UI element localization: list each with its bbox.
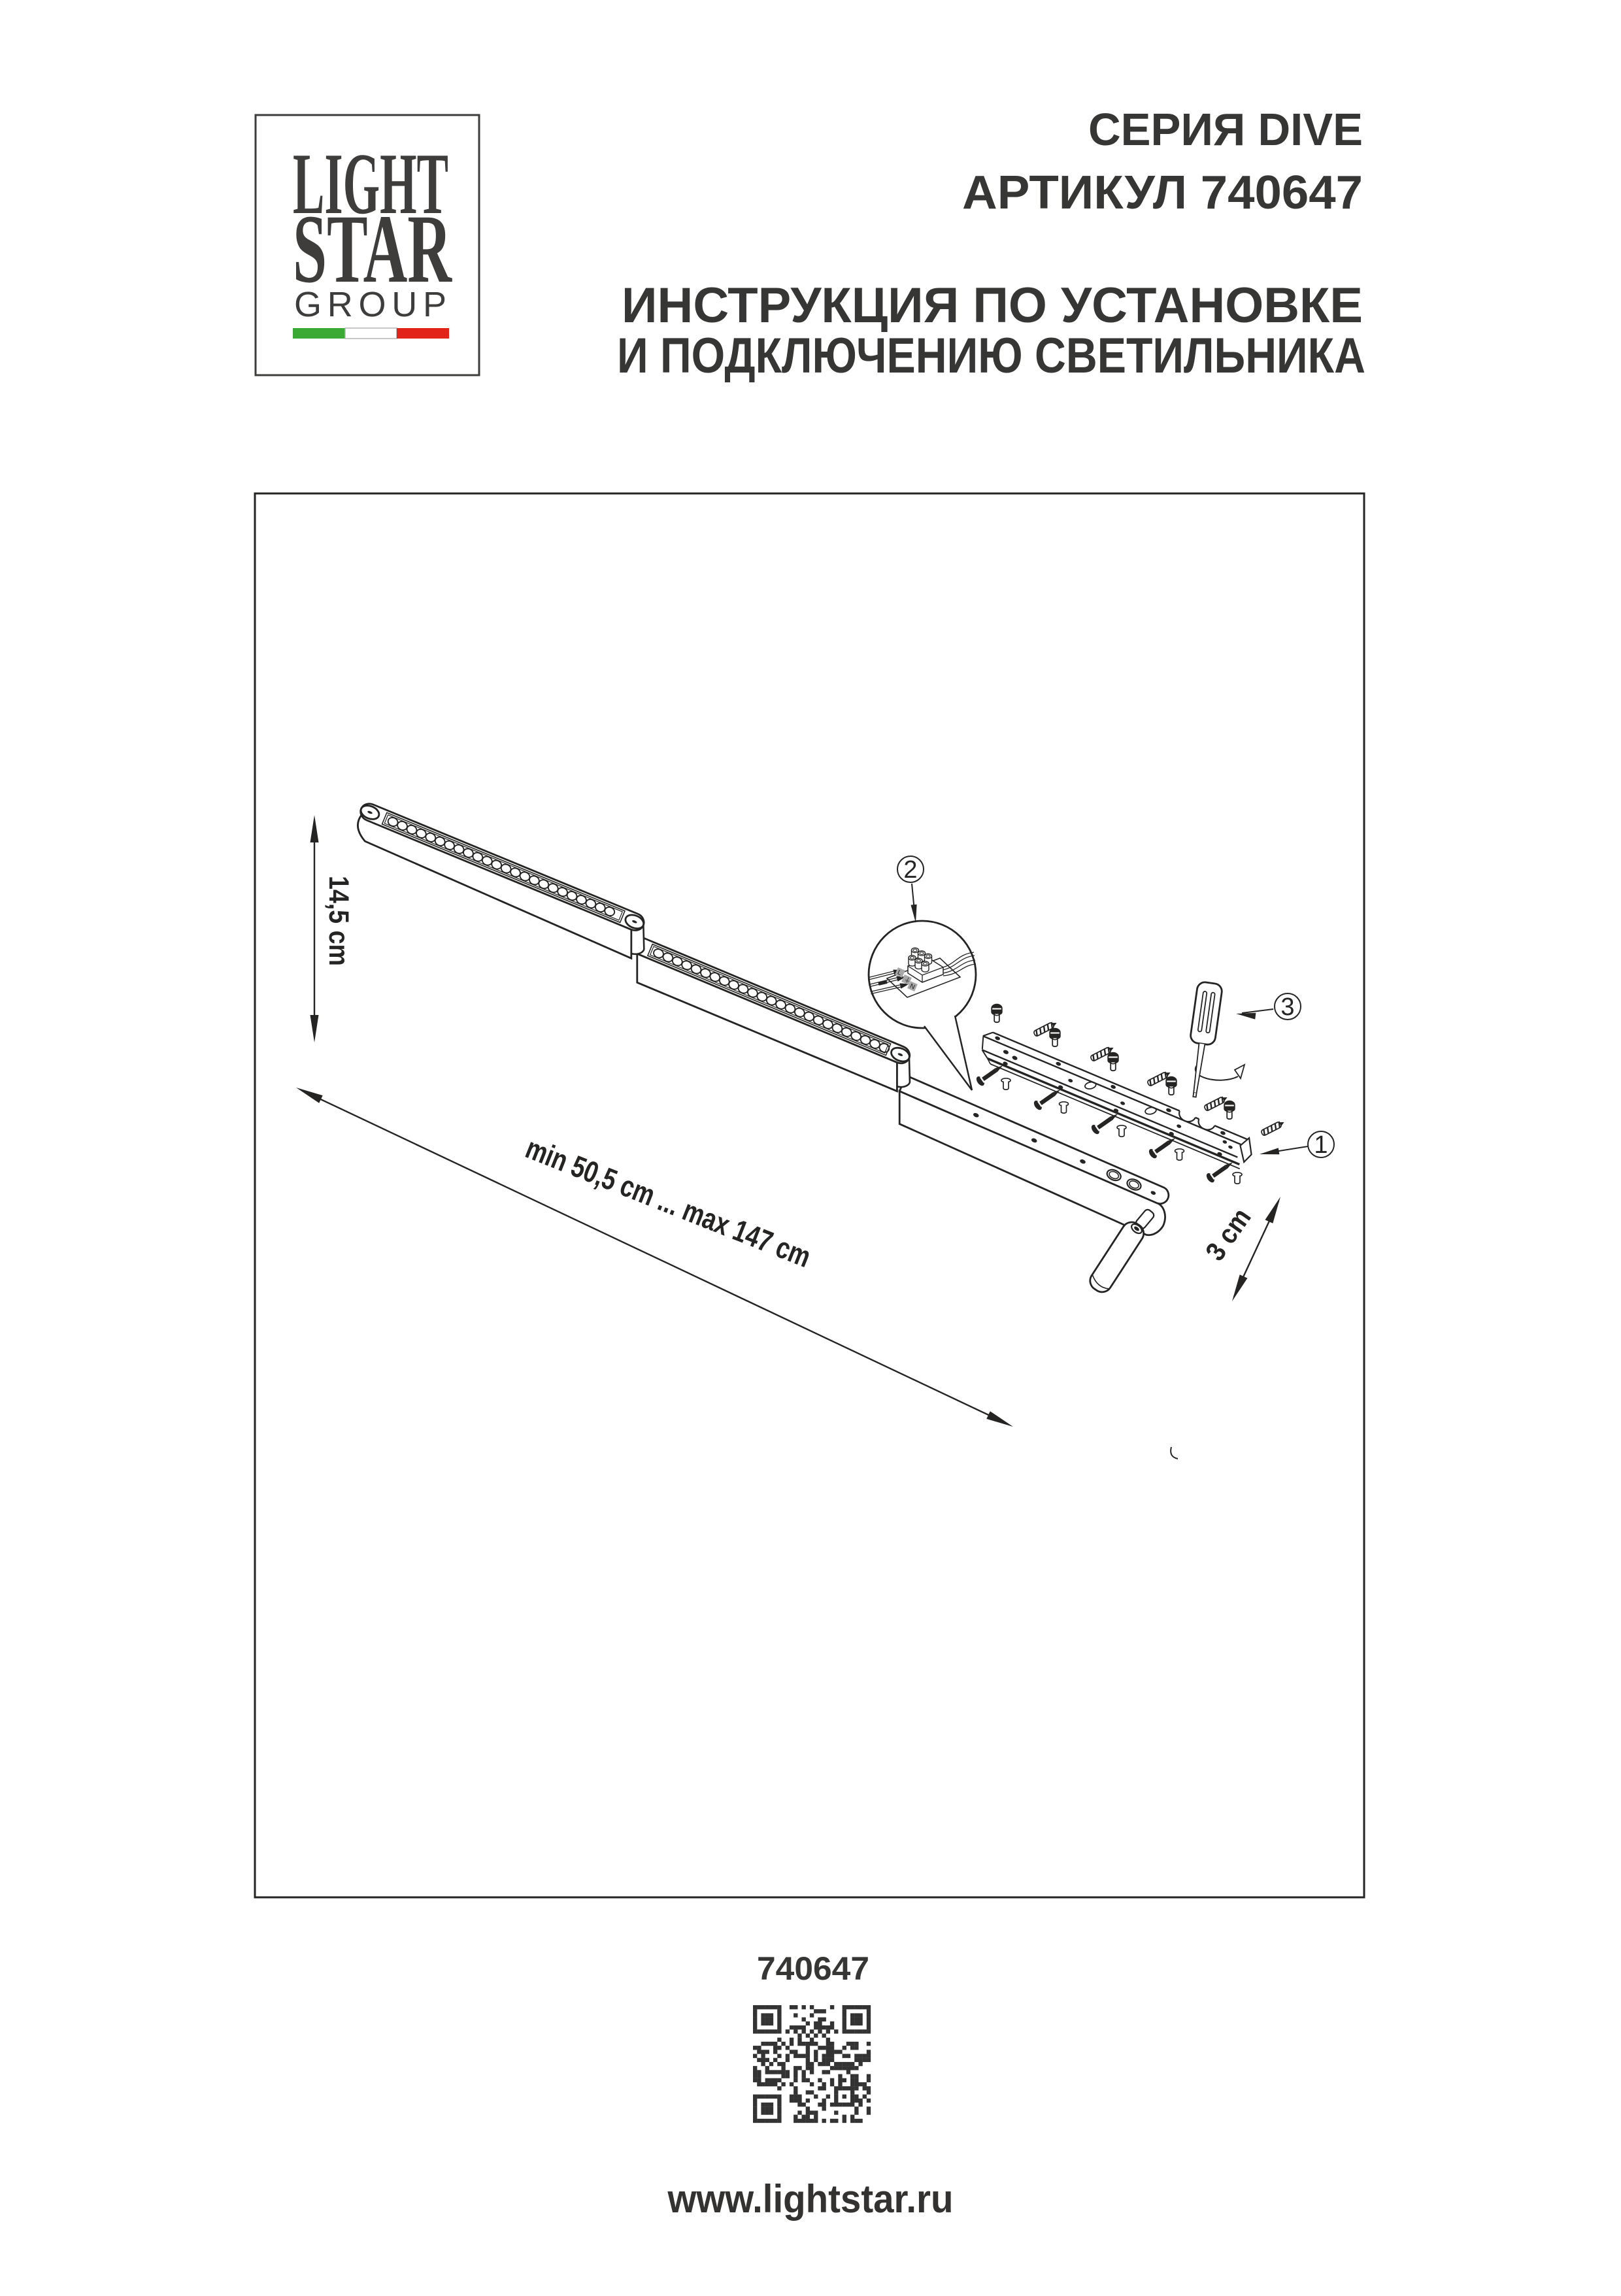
svg-text:3: 3 bbox=[1280, 993, 1294, 1021]
svg-text:СЕРИЯ DIVE: СЕРИЯ DIVE bbox=[1088, 104, 1363, 155]
svg-text:И ПОДКЛЮЧЕНИЮ СВЕТИЛЬНИКА: И ПОДКЛЮЧЕНИЮ СВЕТИЛЬНИКА bbox=[617, 328, 1365, 384]
svg-text:АРТИКУЛ 740647: АРТИКУЛ 740647 bbox=[962, 167, 1363, 219]
svg-text:14,5 cm: 14,5 cm bbox=[323, 876, 354, 966]
svg-text:2: 2 bbox=[903, 856, 917, 884]
svg-text:GROUP: GROUP bbox=[294, 285, 446, 324]
svg-text:740647: 740647 bbox=[757, 1950, 869, 1987]
svg-text:1: 1 bbox=[1314, 1131, 1328, 1159]
svg-text:www.lightstar.ru: www.lightstar.ru bbox=[667, 2177, 954, 2221]
svg-text:ИНСТРУКЦИЯ ПО УСТАНОВКЕ: ИНСТРУКЦИЯ ПО УСТАНОВКЕ bbox=[622, 278, 1363, 333]
